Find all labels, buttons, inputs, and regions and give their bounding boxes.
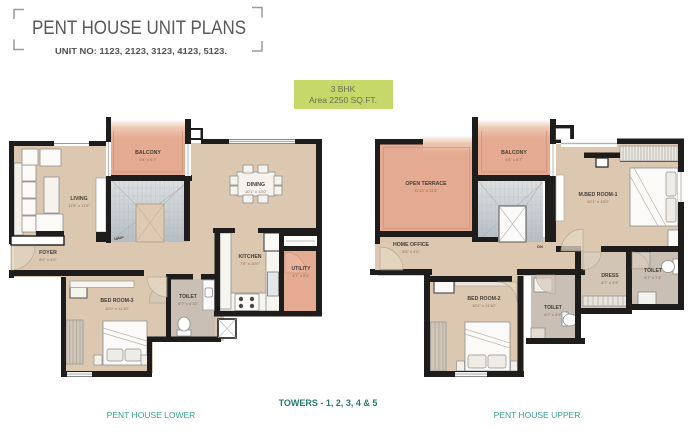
svg-text:BED ROOM-2: BED ROOM-2	[467, 296, 500, 302]
svg-text:PENT HOUSE UPPER: PENT HOUSE UPPER	[494, 410, 581, 420]
svg-text:PENT HOUSE LOWER: PENT HOUSE LOWER	[107, 410, 196, 420]
svg-text:11'10" x 11'6": 11'10" x 11'6"	[414, 188, 438, 193]
svg-text:DN: DN	[537, 244, 543, 249]
svg-text:BALCONY: BALCONY	[135, 150, 161, 156]
svg-text:10'1" x 13'0": 10'1" x 13'0"	[245, 189, 268, 194]
svg-text:DINING: DINING	[247, 182, 265, 188]
svg-text:M.BED ROOM-1: M.BED ROOM-1	[579, 192, 618, 198]
svg-text:OPEN TERRACE: OPEN TERRACE	[405, 181, 447, 187]
svg-text:8'0" x 4'0": 8'0" x 4'0"	[39, 257, 57, 262]
svg-text:8'0" x 4'0": 8'0" x 4'0"	[402, 249, 420, 254]
svg-text:8'7" x 3'9": 8'7" x 3'9"	[601, 280, 619, 285]
svg-text:TOILET: TOILET	[544, 305, 562, 311]
svg-text:PENT HOUSE UNIT PLANS: PENT HOUSE UNIT PLANS	[32, 18, 246, 39]
svg-text:8'7" x 7'3": 8'7" x 7'3"	[644, 275, 662, 280]
svg-text:3 BHK: 3 BHK	[331, 84, 356, 94]
svg-text:HOME OFFICE: HOME OFFICE	[393, 242, 430, 248]
svg-text:TOILET: TOILET	[179, 294, 197, 300]
svg-text:UP: UP	[114, 236, 120, 241]
svg-text:LIVING: LIVING	[70, 196, 87, 202]
svg-text:TOILET: TOILET	[644, 268, 662, 274]
svg-text:6'7" x 4'10": 6'7" x 4'10"	[178, 301, 198, 306]
svg-text:KITCHEN: KITCHEN	[238, 254, 261, 260]
svg-text:7'8" x 10'0": 7'8" x 10'0"	[240, 261, 260, 266]
svg-text:DRESS: DRESS	[601, 273, 619, 279]
svg-text:BALCONY: BALCONY	[501, 150, 527, 156]
svg-text:10'1" x 13'0": 10'1" x 13'0"	[587, 199, 610, 204]
svg-text:Area 2250 SQ.FT.: Area 2250 SQ.FT.	[309, 95, 377, 105]
svg-text:UTILITY: UTILITY	[292, 266, 312, 272]
svg-text:9'4" x 6'7": 9'4" x 6'7"	[139, 157, 157, 162]
svg-text:FOYER: FOYER	[39, 250, 57, 256]
svg-text:8'7" x 3'9": 8'7" x 3'9"	[544, 312, 562, 317]
svg-text:9'4" x 6'7": 9'4" x 6'7"	[505, 157, 523, 162]
svg-text:10'1" x 11'10": 10'1" x 11'10"	[472, 303, 496, 308]
svg-text:BED ROOM-3: BED ROOM-3	[100, 298, 133, 304]
svg-text:TOWERS - 1, 2, 3, 4 & 5: TOWERS - 1, 2, 3, 4 & 5	[279, 398, 378, 408]
svg-text:UNIT NO: 1123, 2123, 3123, 412: UNIT NO: 1123, 2123, 3123, 4123, 5123.	[55, 46, 227, 56]
svg-text:10'0" x 11'10": 10'0" x 11'10"	[105, 306, 129, 311]
svg-text:4'7" x 8'0": 4'7" x 8'0"	[292, 273, 310, 278]
svg-text:11'6" x 11'9": 11'6" x 11'9"	[68, 203, 90, 208]
